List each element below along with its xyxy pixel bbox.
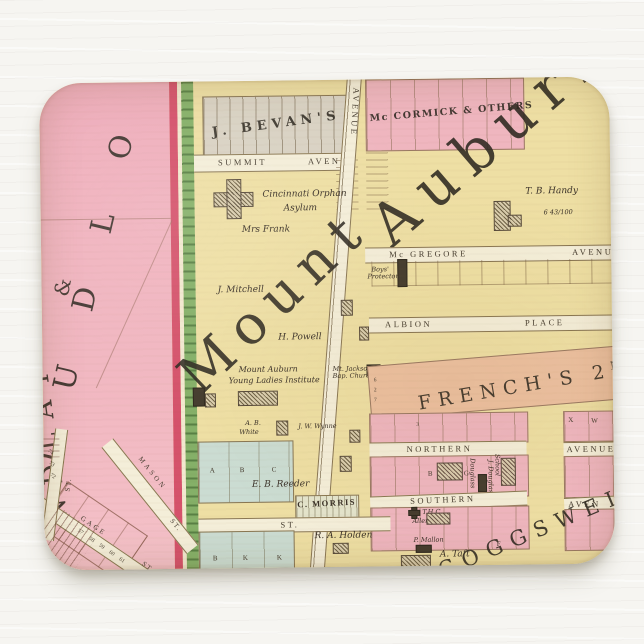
lot-number: 2 bbox=[374, 387, 377, 393]
owner-holden: R. A. Holden bbox=[315, 531, 373, 541]
building bbox=[478, 474, 487, 492]
building bbox=[416, 545, 432, 553]
owner-white1: A. B. bbox=[245, 420, 261, 427]
green-strip-building bbox=[193, 387, 205, 406]
owner-reeder: E. B. Reeder bbox=[252, 480, 310, 490]
owner-taft: A. Taft bbox=[440, 550, 470, 560]
block-letter-a: A bbox=[210, 467, 217, 474]
block-letter-c: C bbox=[272, 467, 278, 474]
mousepad: LUDLO & NDLAY J. BEVAN'S SUMMIT AVENUE A… bbox=[39, 77, 615, 571]
street-albion-place-label: PLACE bbox=[525, 318, 565, 327]
taft-building bbox=[401, 555, 431, 571]
street-albion-label: ALBION bbox=[385, 320, 432, 329]
owner-wynne: J. W. Wynne bbox=[298, 423, 336, 430]
building bbox=[340, 456, 352, 472]
handy-building bbox=[494, 201, 522, 231]
building bbox=[426, 513, 450, 525]
building-wing bbox=[508, 215, 522, 227]
lot-letter-x: X bbox=[568, 417, 575, 424]
blue-block-bkk bbox=[199, 530, 295, 570]
owner-douglass: Douglass bbox=[469, 458, 476, 492]
street-northern-avenue-label: AVENUE bbox=[567, 444, 615, 453]
building-wing bbox=[226, 179, 241, 219]
small-building bbox=[341, 300, 353, 316]
owner-orphan-asylum: Cincinnati Orphan bbox=[262, 190, 346, 200]
owner-handy: T. B. Handy bbox=[525, 187, 578, 197]
block-letter-b: B bbox=[240, 467, 246, 474]
lot-number: 3 bbox=[416, 422, 419, 428]
building bbox=[349, 430, 360, 443]
block-letter-k2: K bbox=[277, 555, 284, 562]
green-strip-building2 bbox=[205, 393, 216, 407]
building bbox=[437, 462, 463, 480]
street-mcgregore-avenue-label: AVENUE bbox=[572, 247, 615, 256]
street-northern-label: NORTHERN bbox=[406, 444, 472, 453]
lot-number: 7 bbox=[374, 397, 377, 403]
owner-institute1: Mount Auburn bbox=[239, 365, 298, 374]
street-st-center-label: ST. bbox=[280, 520, 299, 529]
owner-handy-acres: 6 43/100 bbox=[544, 209, 573, 216]
owner-mitchell: J. Mitchell bbox=[218, 286, 264, 296]
small-building bbox=[359, 326, 369, 340]
lot-letter-w: W bbox=[591, 418, 599, 425]
block-letter-b2: B bbox=[213, 555, 219, 562]
product-photo: { "colors": { "background": "#f6f5f1", "… bbox=[0, 0, 644, 644]
owner-powell: H. Powell bbox=[278, 333, 322, 343]
building bbox=[333, 543, 349, 554]
owner-frank: Mrs Frank bbox=[242, 225, 290, 235]
boys-building bbox=[397, 259, 407, 287]
owner-institute2: Young Ladies Institute bbox=[229, 376, 320, 386]
institute-building bbox=[238, 391, 278, 406]
orphan-asylum-building bbox=[213, 179, 253, 219]
owner-white2: White bbox=[239, 429, 258, 436]
building-wing bbox=[408, 510, 420, 516]
block-letter-f: F bbox=[497, 541, 502, 548]
owner-mallon: P. Mallon bbox=[414, 537, 444, 544]
lots-block bbox=[369, 412, 528, 445]
lot-number: 6 bbox=[374, 377, 377, 383]
street-summit-label: SUMMIT bbox=[218, 158, 267, 167]
block-letter-b: B bbox=[428, 471, 434, 478]
street-mcgregore-label: Mc GREGORE bbox=[389, 249, 468, 258]
owner-orphan-asylum2: Asylum bbox=[284, 204, 318, 214]
block-letter-k1: K bbox=[243, 555, 250, 562]
building bbox=[276, 420, 288, 435]
corner-lot-stripes2 bbox=[43, 435, 59, 457]
street-southern-label: SOUTHERN bbox=[410, 494, 476, 505]
school-building bbox=[501, 458, 516, 486]
